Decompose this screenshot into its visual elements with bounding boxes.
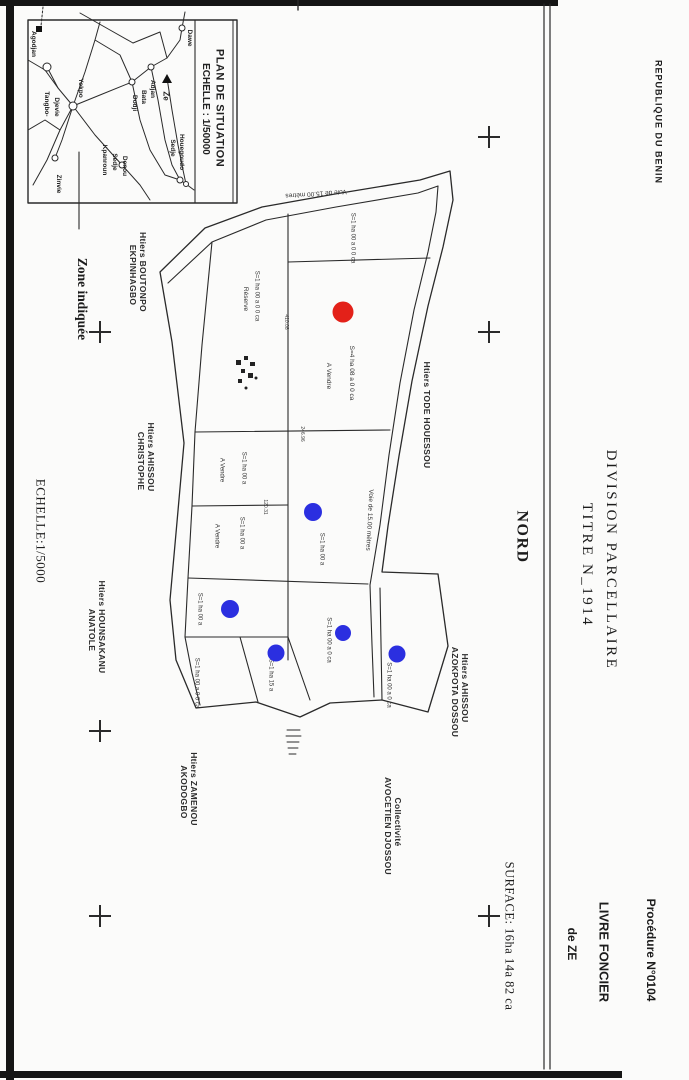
owner-label: Htiers TODE HOUESSOU (422, 362, 432, 469)
parcel-label: S=1 ha 00 a (317, 533, 324, 566)
place-label: Houegoudo (177, 134, 185, 170)
parcel-label: S=1 ha 00 a (237, 517, 244, 550)
survey-cross (89, 905, 111, 927)
parcel-label: S=1 ha 00 a 0 ca (384, 662, 391, 708)
inset-title: PLAN DE SITUATION (213, 49, 226, 167)
doc-title-line1: DIVISION PARCELLAIRE (601, 450, 619, 671)
place-label: Agodjan (29, 31, 37, 57)
owner-label: Htiers AHISSOU (460, 653, 470, 722)
country-label: REPUBLIQUE DU BENIN (653, 60, 664, 184)
parcel-label: S=1 ha 00 a 0 0 ca (348, 213, 355, 264)
owner-label: Htiers BOUTONPO (138, 232, 148, 312)
survey-cross (89, 321, 111, 343)
red-parcel-marker (333, 302, 354, 323)
main-scale-label: ECHELLE:1/5000 (33, 479, 48, 584)
parcel-label: S=1 ha 00 a 0 0 ca (192, 658, 199, 709)
blue-parcel-marker (268, 645, 285, 662)
registry-line1: LIVRE FONCIER (596, 902, 611, 1002)
place-label: Dodji (130, 95, 138, 111)
owner-label: Collectivité (393, 798, 403, 847)
surface-label: SURFACE: 16ha 14a 82 ca (502, 862, 517, 1011)
parcel-boundaries (160, 171, 453, 717)
building-cluster (236, 356, 258, 390)
owner-label: Htiers ZAMENOU (189, 752, 199, 826)
owner-label: AZOKPOTA DOSSOU (450, 647, 460, 737)
parcel-label: A Vendre (324, 363, 332, 389)
doc-title-line2: TITRE N_1914 (577, 503, 595, 628)
survey-cross (478, 321, 500, 343)
owner-label: EKPINHAGBO (128, 245, 138, 306)
place-label: Sedje (110, 153, 118, 170)
blue-parcel-marker (304, 503, 322, 521)
parcel-label: A Vendre (217, 458, 224, 482)
place-label: Adjan (148, 80, 156, 98)
parcel-label: Réserve (241, 287, 249, 311)
scanned-cadastral-plan: REPUBLIQUE DU BENINProcédure N°0104DIVIS… (0, 0, 689, 1080)
parcel-label: S=1 ha 00 a 0 0 ca (252, 271, 259, 322)
place-label: Bata (139, 90, 147, 104)
parcel-label: A Vendre (212, 524, 219, 548)
place-label: Sedje (168, 139, 176, 156)
zone-note-label: Zone indiquée (74, 258, 90, 340)
parcel-label: S=1 ha 00 a 0 ca (324, 617, 331, 663)
parcel-label: S=1 ha 00 a (195, 593, 202, 626)
blue-parcel-marker (221, 600, 239, 618)
north-label: NORD (512, 510, 531, 563)
survey-cross (478, 126, 500, 148)
inset-scale: ECHELLE : 1/50000 (199, 63, 211, 155)
dimension-label: 120.31 (261, 499, 267, 514)
place-label: Tangbo- (42, 91, 50, 116)
place-label: Zinvie (54, 175, 62, 194)
hatch-mark (286, 730, 301, 754)
registry-line2: de ZE (565, 928, 579, 961)
survey-cross (478, 905, 500, 927)
owner-label: Htiers HOUNSAKANU (97, 581, 107, 674)
parcel-label: S=1 ha 00 a (239, 452, 246, 485)
parcel-label: S=1 ha 15 a (266, 659, 273, 692)
owner-label: CHRISTOPHE (136, 432, 146, 491)
owner-label: Htiers AHISSOU (146, 422, 156, 491)
survey-cross (89, 720, 111, 742)
owner-label: ANATOLE (87, 609, 97, 651)
blue-parcel-marker (389, 646, 406, 663)
parcel-label: S=4 ha 08 a 0 0 ca (347, 346, 355, 401)
dimension-label: 410.08 (282, 314, 288, 329)
place-label: Yokpo (76, 78, 84, 97)
owner-label: AVOCETIEN DJOSSOU (383, 777, 393, 875)
place-label: Ze (161, 91, 170, 100)
place-label: Denou (120, 156, 128, 176)
place-label: Dawe (185, 30, 193, 47)
owner-label: AKODOGBO (179, 765, 189, 818)
place-label: Kpanroun (100, 145, 108, 176)
blue-parcel-marker (335, 625, 351, 641)
dimension-label: 246.96 (298, 426, 304, 441)
procedure-label: Procédure N°0104 (644, 899, 658, 1002)
place-label: Djevie (52, 97, 60, 116)
